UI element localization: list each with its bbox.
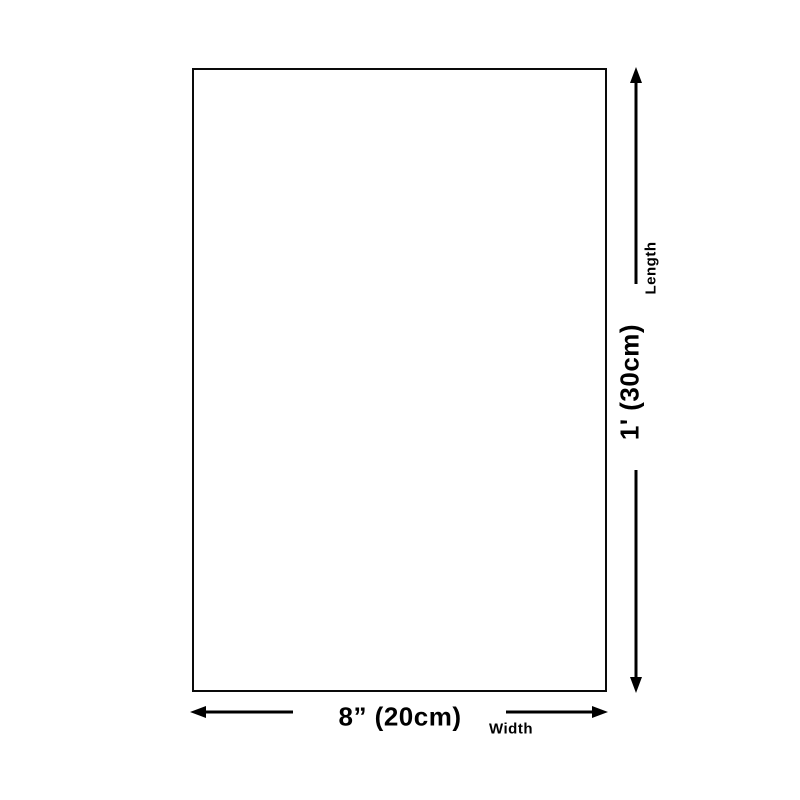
arrow-left-icon	[190, 706, 206, 718]
width-axis-label: Width	[489, 721, 533, 738]
arrow-up-icon	[630, 67, 642, 83]
dimension-arrows	[0, 0, 800, 800]
dimension-diagram: Length 1' (30cm) 8” (20cm) Width	[0, 0, 800, 800]
width-value-label: 8” (20cm)	[339, 702, 462, 733]
length-axis-label: Length	[643, 242, 660, 295]
arrow-right-icon	[592, 706, 608, 718]
arrow-down-icon	[630, 677, 642, 693]
length-value-label: 1' (30cm)	[615, 324, 646, 440]
